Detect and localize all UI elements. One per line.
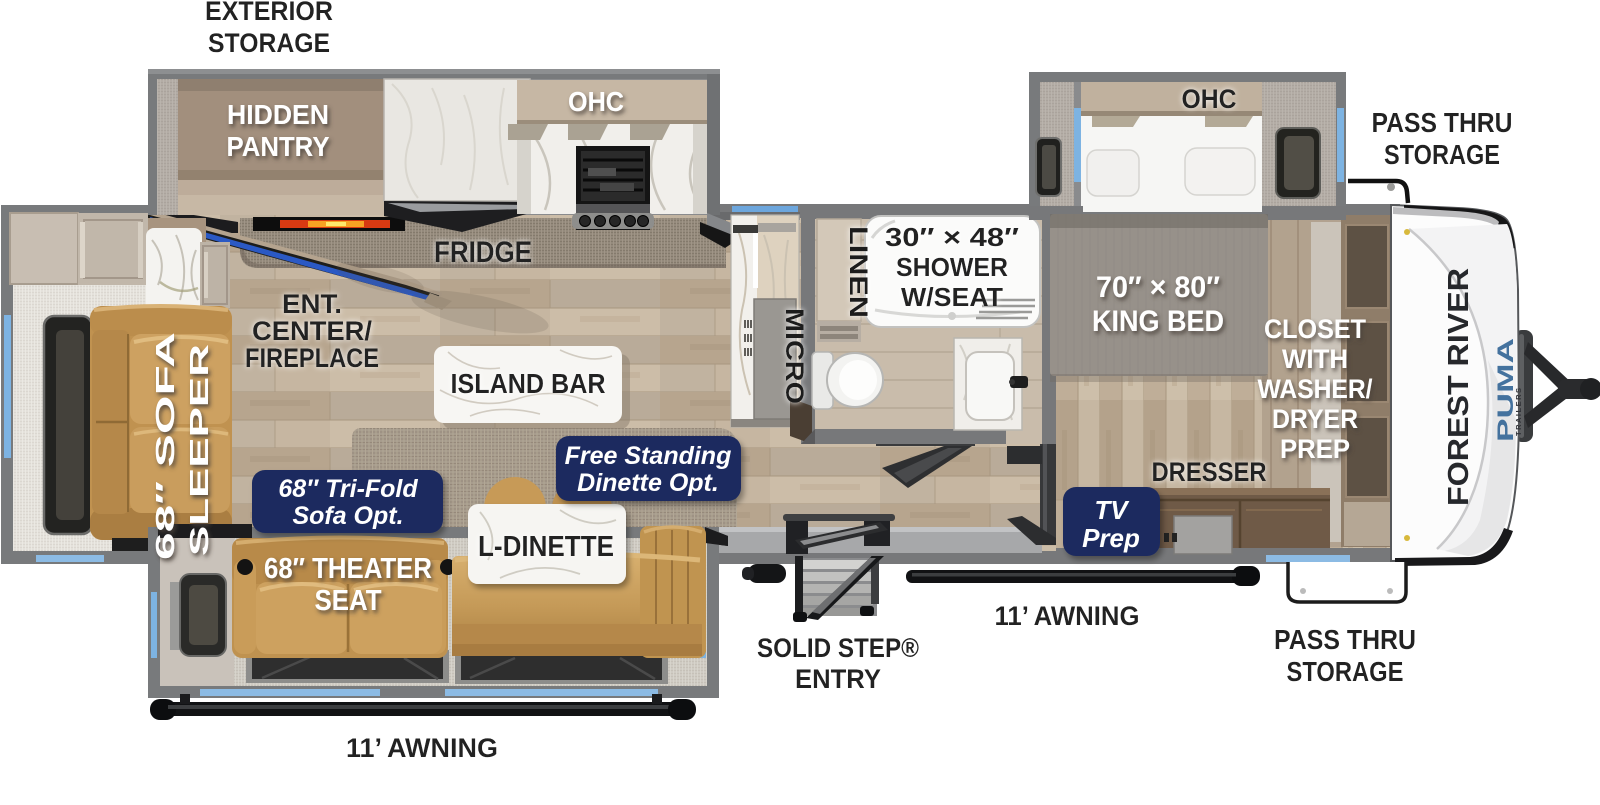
svg-text:OHC: OHC [1182, 84, 1237, 114]
svg-text:Dinette Opt.: Dinette Opt. [577, 469, 719, 497]
svg-text:68″ THEATER: 68″ THEATER [264, 553, 432, 585]
svg-text:WITH: WITH [1282, 344, 1348, 374]
svg-text:EXTERIOR: EXTERIOR [205, 0, 333, 26]
svg-text:L-DINETTE: L-DINETTE [478, 531, 614, 563]
svg-text:W/SEAT: W/SEAT [901, 282, 1003, 312]
svg-text:ENTRY: ENTRY [795, 664, 881, 694]
svg-text:FRIDGE: FRIDGE [434, 236, 532, 269]
svg-text:TRAILERS: TRAILERS [1514, 387, 1523, 437]
svg-text:SLEEPER: SLEEPER [184, 344, 214, 556]
svg-text:70″ × 80″: 70″ × 80″ [1096, 271, 1220, 304]
svg-text:11’ AWNING: 11’ AWNING [346, 733, 498, 763]
svg-text:DRYER: DRYER [1272, 404, 1358, 434]
svg-text:OHC: OHC [568, 86, 624, 117]
svg-text:STORAGE: STORAGE [1287, 656, 1404, 687]
svg-text:SOLID STEP®: SOLID STEP® [757, 633, 919, 663]
svg-text:MICRO: MICRO [780, 308, 808, 404]
svg-text:FOREST RIVER: FOREST RIVER [1443, 268, 1475, 506]
svg-text:30″ × 48″: 30″ × 48″ [885, 222, 1019, 252]
svg-text:PASS THRU: PASS THRU [1274, 624, 1416, 655]
svg-text:PASS THRU: PASS THRU [1372, 107, 1513, 138]
svg-text:LINEN: LINEN [844, 226, 872, 318]
svg-text:STORAGE: STORAGE [1384, 139, 1500, 170]
svg-text:11’ AWNING: 11’ AWNING [995, 601, 1140, 631]
svg-text:CLOSET: CLOSET [1264, 314, 1366, 344]
svg-text:DRESSER: DRESSER [1152, 457, 1267, 487]
svg-text:PANTRY: PANTRY [227, 131, 330, 162]
svg-text:CENTER/: CENTER/ [252, 316, 372, 346]
svg-text:TV: TV [1094, 495, 1130, 525]
svg-text:WASHER/: WASHER/ [1258, 374, 1373, 404]
svg-text:KING BED: KING BED [1092, 305, 1224, 338]
svg-text:Prep: Prep [1082, 523, 1140, 553]
svg-text:HIDDEN: HIDDEN [227, 99, 329, 130]
svg-text:68″ Tri-Fold: 68″ Tri-Fold [278, 475, 418, 503]
svg-text:ISLAND BAR: ISLAND BAR [451, 368, 606, 399]
svg-text:SHOWER: SHOWER [896, 252, 1008, 282]
svg-text:PREP: PREP [1280, 434, 1350, 464]
svg-text:SEAT: SEAT [315, 585, 382, 617]
svg-text:FIREPLACE: FIREPLACE [245, 343, 379, 373]
svg-text:ENT.: ENT. [282, 289, 342, 319]
svg-text:Sofa Opt.: Sofa Opt. [292, 502, 403, 530]
svg-text:68″ SOFA: 68″ SOFA [150, 332, 180, 560]
svg-text:STORAGE: STORAGE [208, 28, 330, 58]
svg-text:Free Standing: Free Standing [565, 442, 732, 470]
